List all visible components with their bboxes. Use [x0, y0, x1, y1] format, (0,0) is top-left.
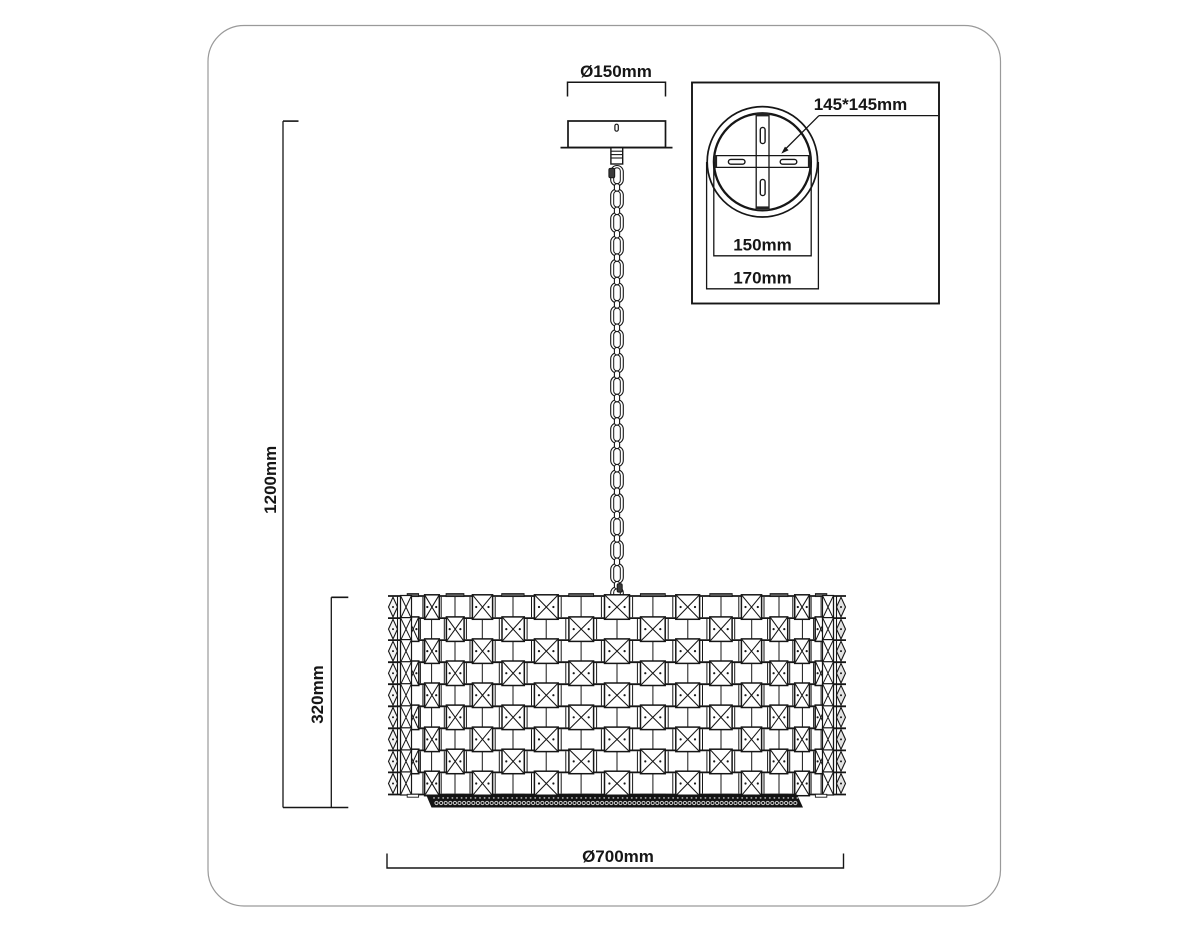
svg-text:170mm: 170mm [733, 269, 792, 288]
svg-text:Ø700mm: Ø700mm [582, 847, 654, 866]
svg-text:145*145mm: 145*145mm [814, 95, 908, 114]
svg-text:150mm: 150mm [733, 236, 792, 255]
svg-text:Ø150mm: Ø150mm [580, 62, 652, 81]
svg-text:320mm: 320mm [308, 665, 327, 724]
svg-text:1200mm: 1200mm [261, 446, 280, 514]
